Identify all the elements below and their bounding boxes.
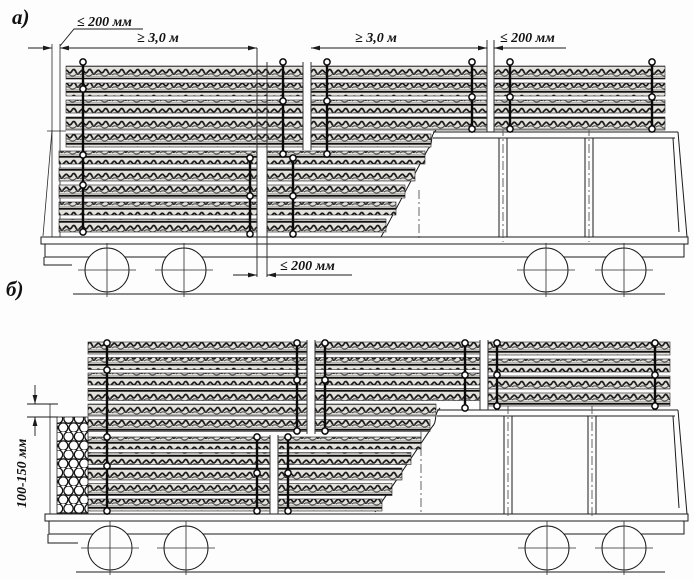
log-row — [267, 219, 386, 232]
dim-right-gap-text: ≤ 200 мм — [500, 31, 555, 46]
log-stack-lower-left-b — [88, 437, 270, 511]
stake — [504, 405, 512, 518]
log-row — [494, 83, 665, 96]
log-row — [88, 499, 270, 511]
log-row — [59, 168, 257, 181]
label-a: а) — [12, 5, 30, 29]
log-row — [267, 168, 415, 181]
dim-bottom-gap-a: ≤ 200 мм — [233, 259, 352, 277]
log-row — [88, 373, 307, 385]
log-row — [59, 151, 257, 164]
log-row — [311, 66, 487, 79]
log-row — [88, 468, 270, 480]
log-stack-lower-left-a — [59, 151, 257, 232]
log-stack-upper-middle-a — [311, 66, 487, 147]
dim-span2-text: ≥ 3,0 м — [355, 31, 397, 46]
timber-loading-drawing: а) — [0, 0, 694, 580]
diagram-b: б) — [6, 277, 688, 575]
stake — [499, 127, 507, 242]
dim-right-gap-a: ≤ 200 мм — [494, 31, 566, 50]
log-ends-stack — [57, 417, 88, 514]
log-row — [88, 437, 270, 449]
log-row — [311, 134, 431, 147]
dim-left-gap-text: ≤ 200 мм — [77, 15, 132, 30]
log-row — [267, 202, 396, 215]
log-row — [488, 376, 670, 389]
loading-scheme-figure: а) — [0, 0, 694, 580]
log-row — [488, 359, 670, 372]
log-row — [88, 358, 307, 370]
wagon-frame — [49, 521, 684, 534]
wagon-a — [41, 237, 688, 297]
log-row — [278, 437, 421, 449]
log-stack-upper-middle-b — [315, 342, 480, 432]
log-row — [59, 219, 257, 232]
log-row — [494, 117, 665, 130]
dim-height-b: 100-150 мм — [15, 385, 58, 508]
log-row — [88, 404, 307, 416]
log-row — [59, 185, 257, 198]
log-row — [278, 484, 392, 496]
log-row — [315, 420, 430, 432]
log-row — [488, 393, 670, 406]
log-stack-lower-middle-b — [278, 437, 421, 511]
log-stack-upper-right-a — [494, 66, 665, 130]
log-stack-upper-left-b — [88, 342, 307, 432]
log-stack-lower-middle-a — [267, 151, 425, 232]
log-row — [88, 389, 307, 401]
label-b: б) — [6, 277, 23, 301]
log-row — [315, 404, 436, 416]
log-row — [278, 499, 382, 511]
wagon-deck — [41, 237, 688, 244]
log-row — [315, 358, 480, 370]
wagon-frame — [45, 244, 684, 257]
dim-span1-a: ≥ 3,0 м — [60, 31, 257, 50]
log-row — [315, 389, 480, 401]
dim-span2-a: ≥ 3,0 м — [311, 31, 487, 50]
log-row — [494, 100, 665, 113]
dim-bottom-gap-text: ≤ 200 мм — [280, 259, 335, 274]
log-row — [278, 468, 402, 480]
wagon-left-step — [44, 257, 72, 265]
log-row — [315, 342, 480, 354]
dim-span1-text: ≥ 3,0 м — [137, 31, 179, 46]
log-row — [267, 185, 405, 198]
log-row — [278, 453, 411, 465]
dim-left-gap-a: ≤ 200 мм — [28, 15, 143, 50]
log-row — [88, 342, 307, 354]
log-row — [311, 117, 487, 130]
log-row — [88, 453, 270, 465]
log-row — [315, 373, 480, 385]
log-row — [88, 420, 307, 432]
dim-height-text: 100-150 мм — [15, 438, 30, 508]
stake — [588, 405, 596, 518]
log-stack-upper-right-b — [488, 342, 670, 406]
log-row — [88, 484, 270, 496]
log-row — [494, 66, 665, 79]
log-row — [488, 342, 670, 355]
log-row — [311, 83, 487, 96]
stake — [585, 127, 593, 242]
log-row — [311, 100, 487, 113]
log-row — [59, 202, 257, 215]
diagram-a: а) — [12, 5, 688, 297]
wagon-left-step — [48, 534, 78, 543]
wagon-b — [45, 514, 688, 575]
